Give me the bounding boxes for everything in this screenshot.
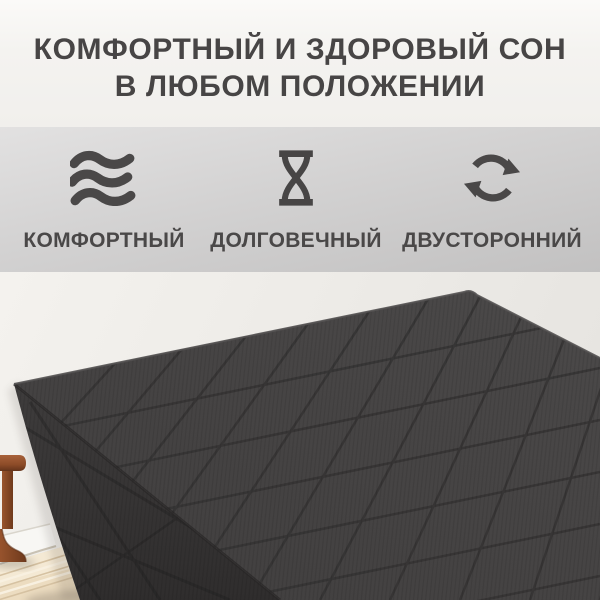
features-band: КОМФОРТНЫЙ ДОЛГОВЕЧНЫЙ: [0, 127, 600, 272]
feature-double-sided: ДВУСТОРОННИЙ: [398, 127, 586, 272]
product-card: КОМФОРТНЫЙ И ЗДОРОВЫЙ СОНВ ЛЮБОМ ПОЛОЖЕН…: [0, 0, 600, 600]
header-section: КОМФОРТНЫЙ И ЗДОРОВЫЙ СОНВ ЛЮБОМ ПОЛОЖЕН…: [0, 0, 600, 127]
title-line-2: В ЛЮБОМ ПОЛОЖЕНИИ: [115, 70, 485, 103]
title-line-1: КОМФОРТНЫЙ И ЗДОРОВЫЙ СОН: [34, 33, 567, 66]
feature-label: ДОЛГОВЕЧНЫЙ: [210, 229, 382, 253]
refresh-icon: [461, 148, 523, 208]
feature-comfortable: КОМФОРТНЫЙ: [14, 127, 194, 272]
feature-label: КОМФОРТНЫЙ: [23, 229, 184, 253]
hourglass-icon: [271, 148, 321, 208]
waves-icon: [70, 148, 138, 208]
feature-label: ДВУСТОРОННИЙ: [402, 229, 582, 253]
product-photo: [0, 272, 600, 600]
page-title: КОМФОРТНЫЙ И ЗДОРОВЫЙ СОНВ ЛЮБОМ ПОЛОЖЕН…: [0, 0, 600, 105]
feature-durable: ДОЛГОВЕЧНЫЙ: [203, 127, 389, 272]
